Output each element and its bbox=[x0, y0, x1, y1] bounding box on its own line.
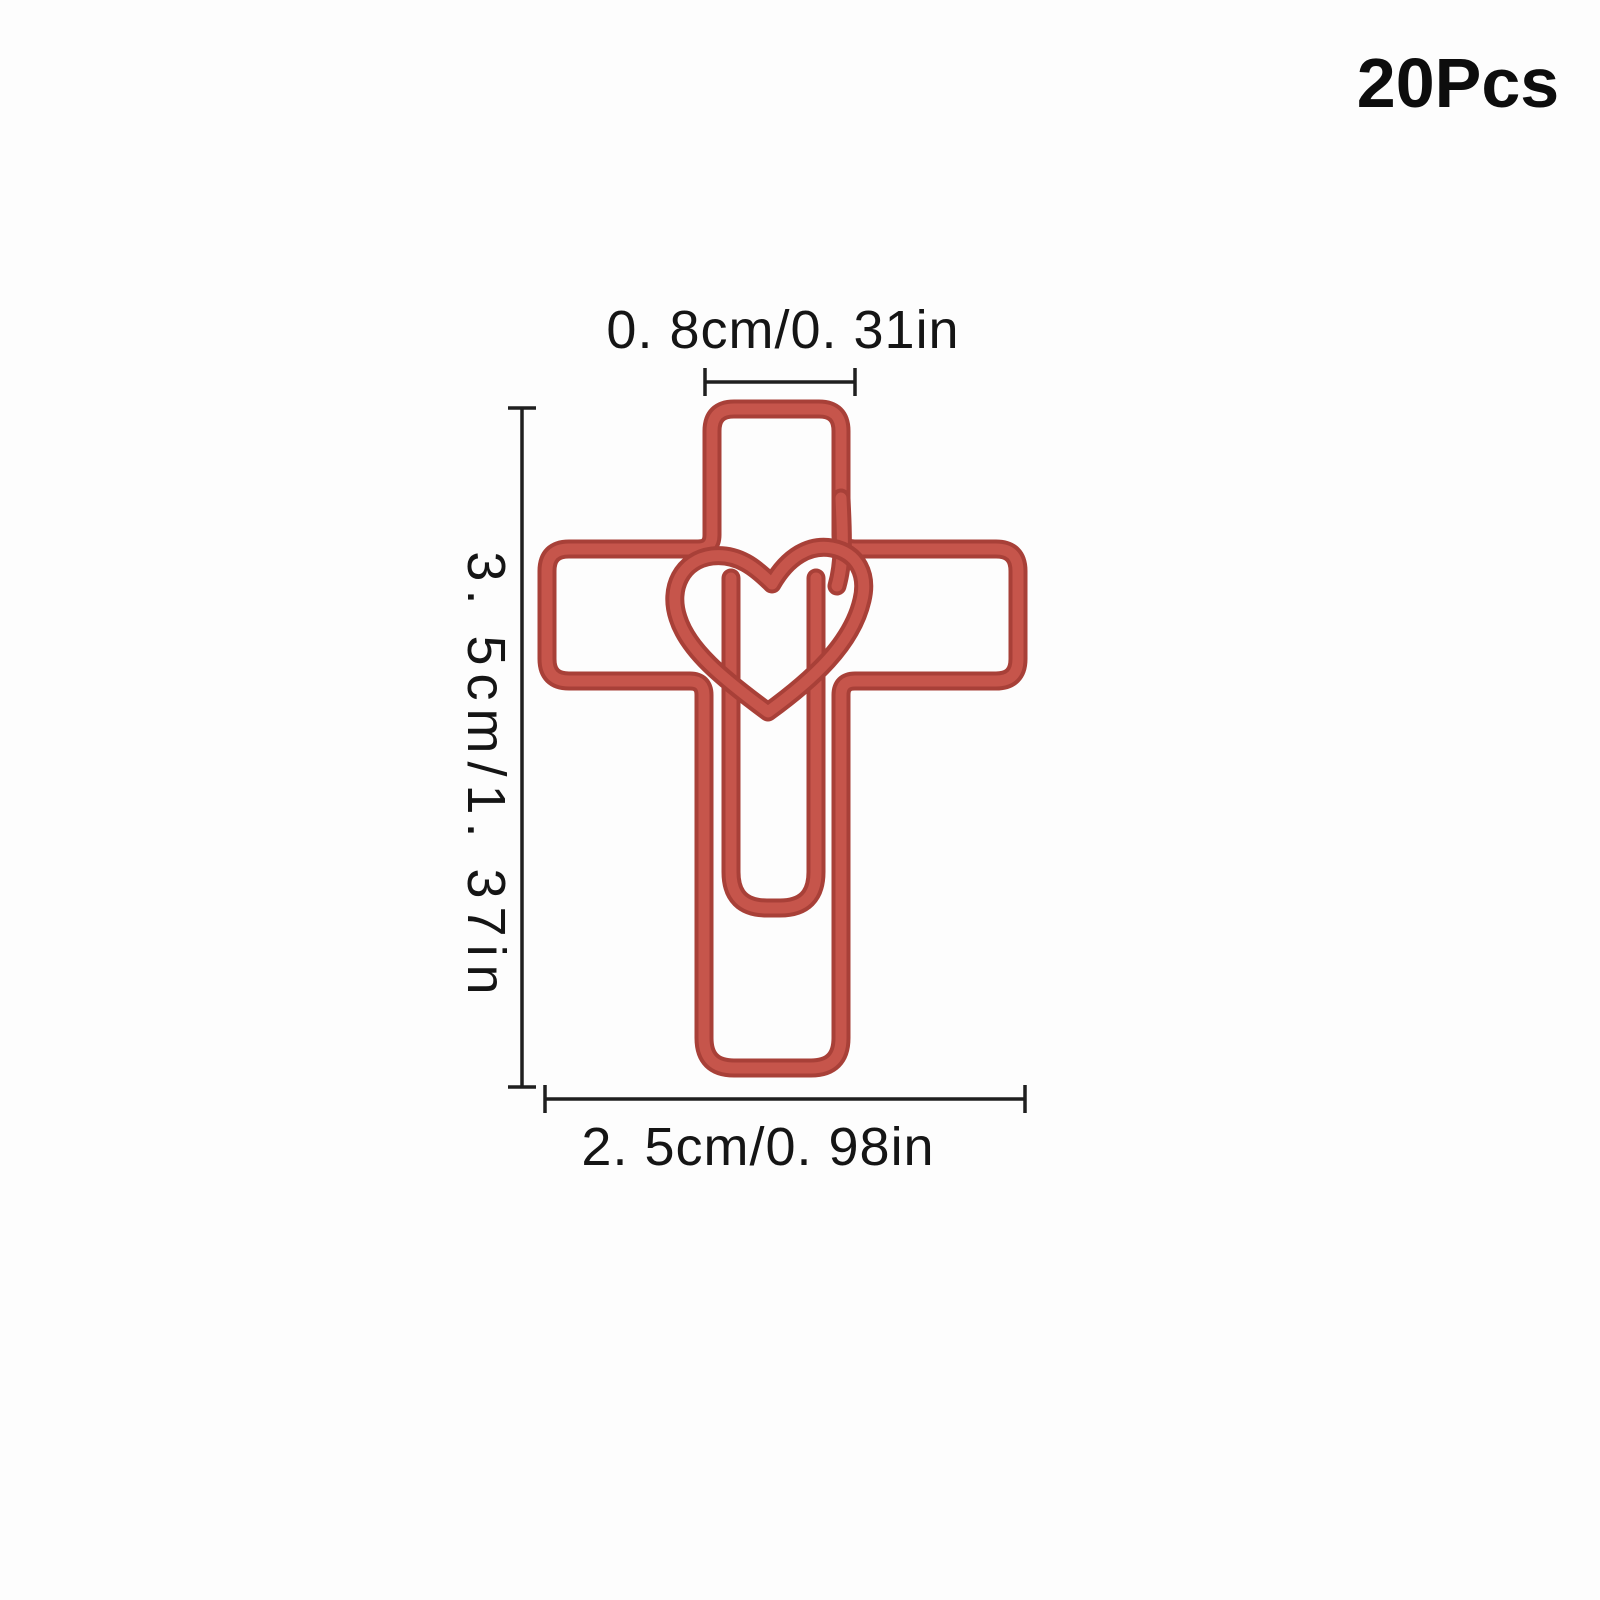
cross-heart-paper-clip bbox=[547, 409, 1018, 1068]
top-width-label: 0. 8cm/0. 31in bbox=[606, 300, 959, 360]
inner-loop-wire bbox=[731, 578, 816, 908]
height-dimension: 3. 5cm/1. 37in bbox=[456, 408, 536, 1087]
top-width-dimension: 0. 8cm/0. 31in bbox=[606, 300, 959, 396]
cross-outline-wire bbox=[547, 409, 1018, 1068]
cross-outline-wire-core bbox=[547, 409, 1018, 1068]
product-dimension-diagram: 20Pcs 0. 8cm/0. 31in 3. 5cm/1. 37in 2. 5… bbox=[0, 0, 1600, 1600]
quantity-badge: 20Pcs bbox=[1357, 44, 1559, 122]
height-label: 3. 5cm/1. 37in bbox=[456, 551, 516, 1002]
bottom-width-dimension: 2. 5cm/0. 98in bbox=[545, 1085, 1025, 1177]
inner-loop-wire-core bbox=[731, 578, 816, 908]
diagram-canvas: 20Pcs 0. 8cm/0. 31in 3. 5cm/1. 37in 2. 5… bbox=[0, 0, 1600, 1600]
bottom-width-label: 2. 5cm/0. 98in bbox=[581, 1117, 934, 1177]
